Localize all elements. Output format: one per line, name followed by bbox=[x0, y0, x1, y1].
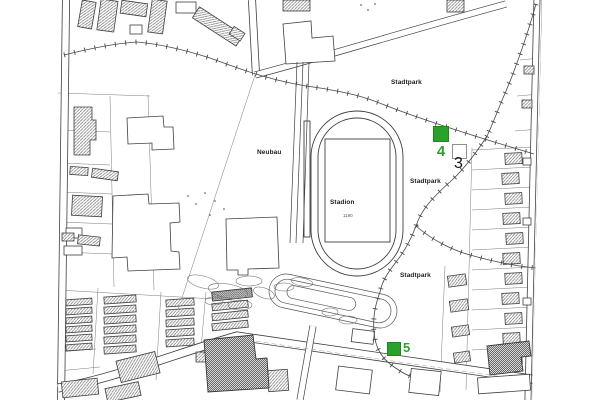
label-stadion: Stadion bbox=[330, 199, 355, 206]
map-viewport: Stadtpark Stadtpark Stadtpark Stadion Ne… bbox=[0, 0, 600, 400]
stadium-track bbox=[304, 111, 403, 276]
marker-5-label: 5 bbox=[403, 340, 410, 355]
label-neubau: Neubau bbox=[257, 149, 281, 156]
marker-4-label: 4 bbox=[433, 143, 449, 160]
marker-3-label: 3 bbox=[449, 155, 468, 173]
label-stadtpark-mid: Stadtpark bbox=[410, 178, 441, 185]
label-stadtpark-top: Stadtpark bbox=[391, 79, 422, 86]
marker-4-square[interactable] bbox=[433, 126, 449, 142]
loop-track bbox=[266, 271, 400, 331]
neubau-path-lines bbox=[290, 62, 309, 243]
point-symbols bbox=[187, 3, 376, 216]
label-stadtpark-bottom: Stadtpark bbox=[400, 272, 431, 279]
map-svg bbox=[0, 0, 600, 400]
label-stadion-parcel-number: 1190 bbox=[343, 213, 353, 218]
marker-5-square[interactable] bbox=[387, 342, 401, 356]
